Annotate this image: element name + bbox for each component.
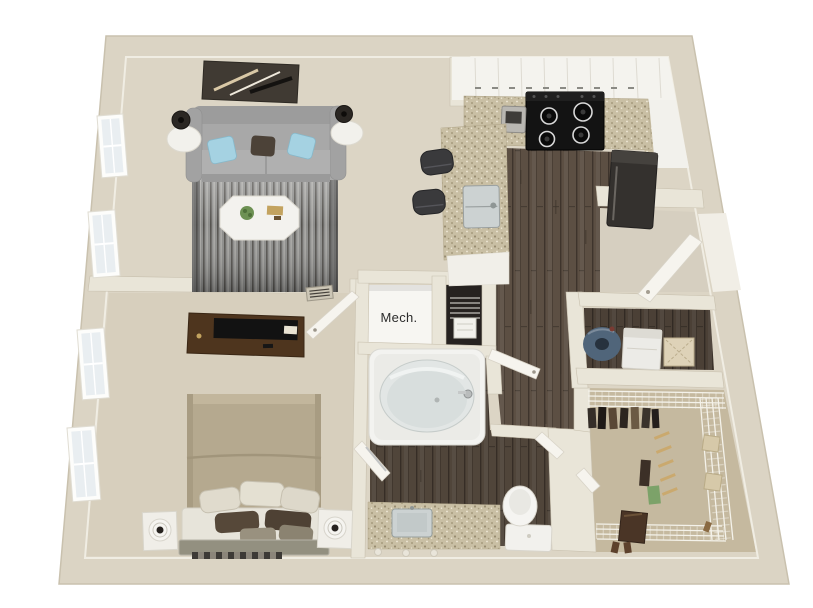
table-decor — [267, 206, 283, 216]
coffee-table — [220, 196, 299, 240]
vent-grille — [306, 285, 333, 301]
dresser — [187, 313, 304, 357]
door-knob — [646, 290, 650, 294]
bar-stool — [419, 148, 454, 176]
bar-sink — [463, 185, 500, 228]
mech-room-label: Mech. — [381, 310, 418, 325]
green-garment — [647, 485, 661, 504]
refrigerator — [607, 150, 658, 229]
plant — [240, 206, 254, 220]
hanging-clothes — [587, 407, 659, 429]
range-cooktop — [526, 92, 604, 150]
bathroom-vanity — [368, 502, 500, 557]
wall-art — [202, 61, 299, 103]
bed — [179, 394, 329, 555]
bar-stool — [412, 188, 446, 215]
floor-plan-canvas: Mech. — [0, 0, 813, 608]
floor-plan-3d-render: Mech. — [0, 0, 813, 608]
pillow-blue — [207, 136, 237, 165]
basket — [664, 338, 694, 366]
mech-floor-shadow — [368, 285, 432, 291]
laundry-appliance — [622, 328, 662, 370]
breakfast-bar — [441, 124, 509, 286]
runner-rug — [192, 552, 282, 559]
closet-stool — [619, 511, 648, 544]
nightstand-right — [317, 509, 352, 548]
pillow-dark — [250, 135, 275, 157]
bathtub — [369, 349, 485, 445]
hanging-garment — [639, 460, 651, 487]
sofa — [186, 106, 346, 182]
nightstand-left — [142, 511, 177, 550]
